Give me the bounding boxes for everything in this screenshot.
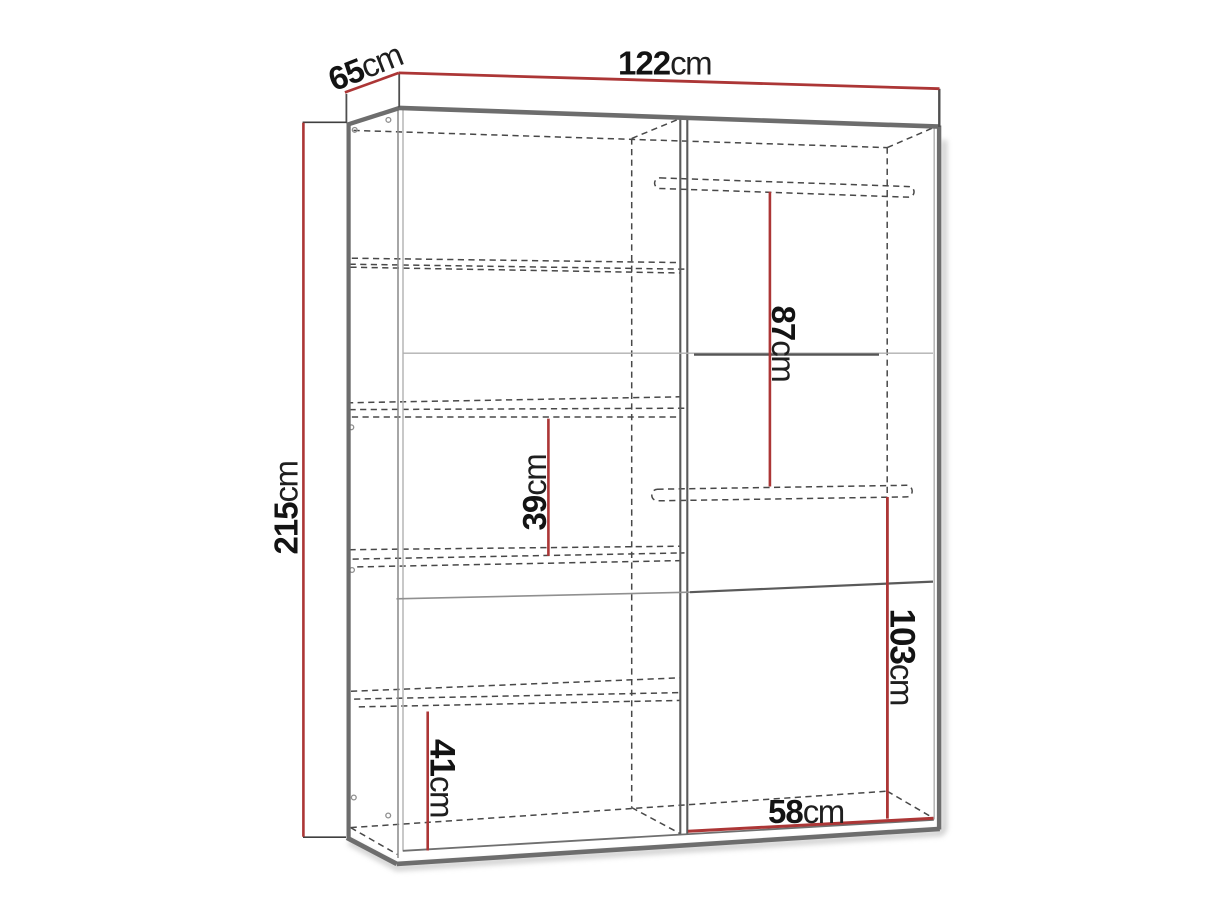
svg-text:39cm: 39cm [516, 455, 553, 531]
svg-text:87cm: 87cm [765, 306, 802, 382]
svg-text:58cm: 58cm [768, 793, 844, 830]
svg-text:103cm: 103cm [883, 609, 922, 705]
svg-text:41cm: 41cm [423, 739, 462, 817]
svg-text:122cm: 122cm [618, 44, 711, 81]
svg-text:215cm: 215cm [268, 461, 305, 554]
